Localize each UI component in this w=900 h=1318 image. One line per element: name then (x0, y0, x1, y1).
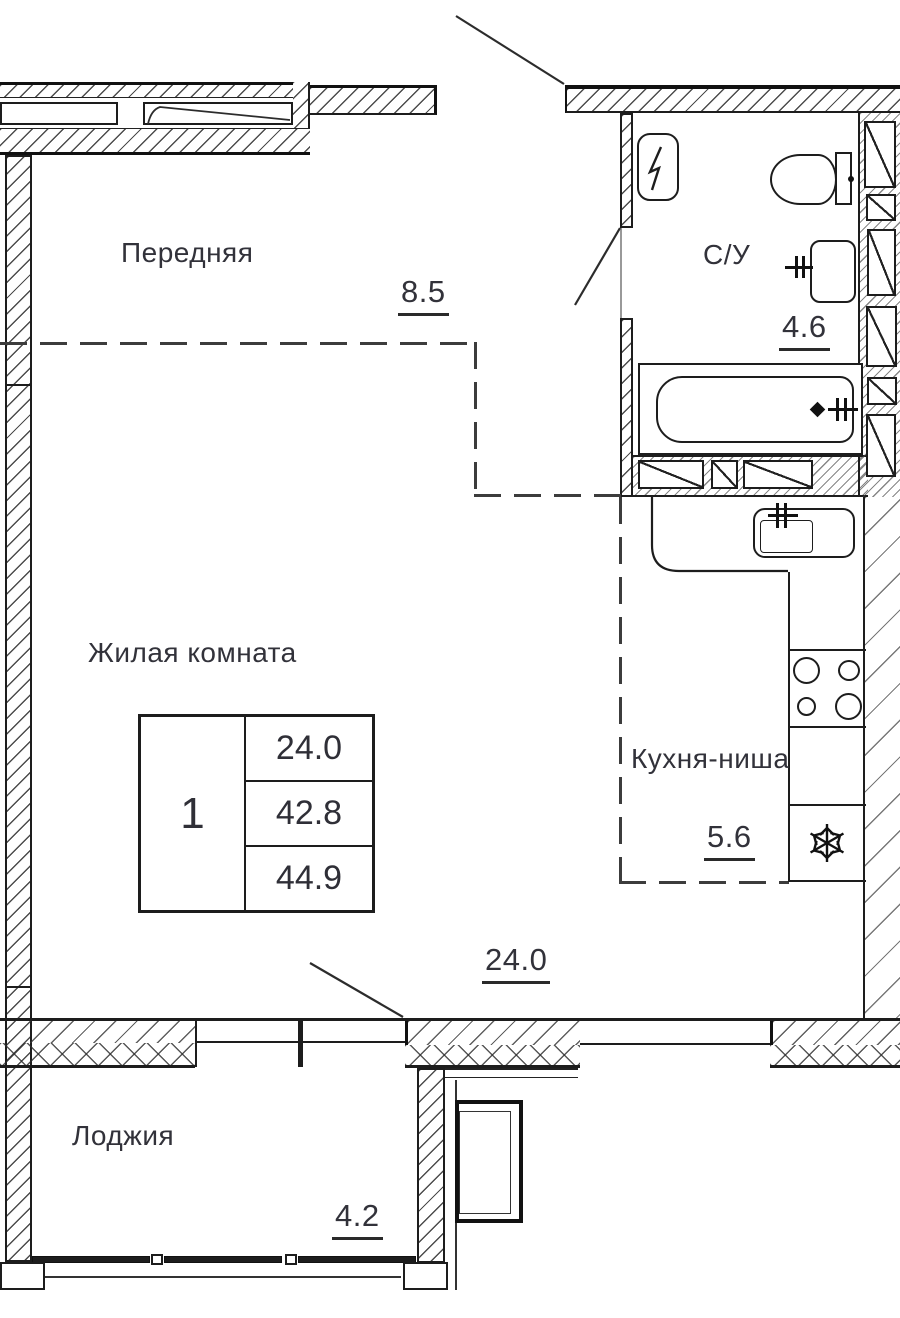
table-area: 42.8 (246, 780, 372, 845)
wardrobe-door-mark (148, 107, 290, 124)
room-label-loggia: Лоджия (72, 1120, 174, 1152)
room-label-bathroom: С/У (703, 239, 750, 271)
bathroom-door-swing (575, 228, 620, 305)
table-total-area: 44.9 (246, 845, 372, 910)
balcony-door-swing (310, 963, 403, 1017)
table-rooms-count: 1 (141, 717, 246, 910)
room-area-kitchen: 5.6 (704, 819, 755, 861)
room-area-loggia: 4.2 (332, 1198, 383, 1240)
floor-plan: Передняя 8.5 С/У 4.6 Жилая комната Кухня… (0, 0, 900, 1318)
kitchen-counter-edge (652, 497, 788, 571)
table-living-area: 24.0 (246, 717, 372, 780)
room-label-kitchen: Кухня-ниша (631, 743, 789, 775)
entrance-door-swing (456, 16, 564, 84)
room-area-main: 24.0 (482, 942, 550, 984)
apartment-info-table: 1 24.0 42.8 44.9 (138, 714, 375, 913)
room-area-bathroom: 4.6 (779, 309, 830, 351)
room-label-hallway: Передняя (121, 237, 253, 269)
lightning-icon (650, 147, 661, 190)
snowflake-icon (807, 824, 847, 862)
room-label-living: Жилая комната (88, 637, 297, 669)
room-area-hallway: 8.5 (398, 274, 449, 316)
